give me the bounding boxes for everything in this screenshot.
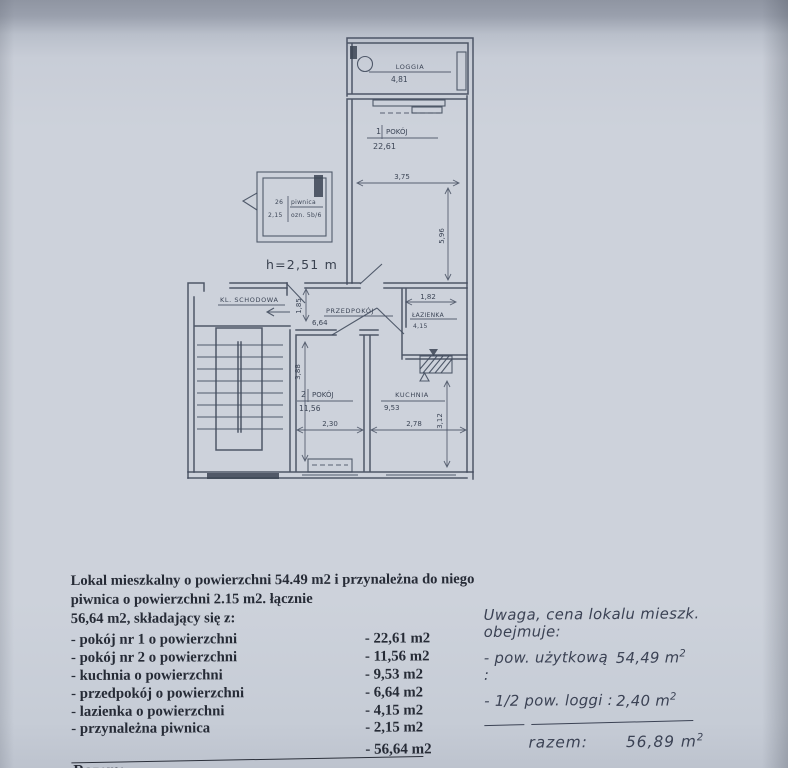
loggia-and-room1-walls (347, 38, 473, 479)
intro-line-1: Lokal mieszkalny o powierzchni 54.49 m2 … (71, 571, 475, 608)
underline-segment (531, 720, 693, 725)
label-bath: ŁAZIENKA (411, 312, 445, 319)
note-total-label: razem: (528, 733, 588, 752)
area-hall: 6,64 (312, 319, 328, 327)
list-item: - pokój nr 1 o powierzchni - 22,61 m2 (71, 630, 511, 650)
ventilation-shaft (420, 349, 452, 381)
note-piwnica: ozn. 5b/6 (291, 212, 322, 219)
item-label: - lazienka o powierzchni (71, 702, 365, 721)
list-item: - przynależna piwnica - 2,15 m2 (71, 719, 511, 739)
list-item: - przedpokój o powierzchni - 6,64 m2 (71, 684, 511, 704)
note-total-value: 56,89 m2 (626, 732, 704, 751)
dim-room1-width: 3,75 (394, 173, 410, 181)
stairwell-window (207, 473, 279, 479)
label-kitchen: KUCHNIA (395, 391, 429, 399)
entrance-arrow (267, 308, 290, 316)
item-value: - 2,15 m2 (365, 720, 423, 738)
note-value-sup: 2 (679, 648, 686, 659)
list-item: - pokój nr 2 o powierzchni - 11,56 m2 (71, 648, 511, 668)
area-room2: 11,56 (299, 404, 321, 413)
item-value: - 6,64 m2 (365, 684, 423, 702)
label-loggia: LOGGIA (396, 63, 425, 71)
note-row-label: - 1/2 pow. loggi : (484, 692, 616, 711)
dim-kitchen-width: 2,78 (406, 420, 422, 428)
door-swings (267, 264, 404, 335)
ceiling-height-note: h=2,51 m (266, 257, 338, 272)
label-hall: PRZEDPOKÓJ (326, 306, 374, 315)
label-piwnica: piwnica (291, 199, 316, 206)
dim-bath-width: 1,82 (420, 293, 436, 301)
label-room2: POKÓJ (312, 390, 334, 399)
dim-room2-height: 3,88 (294, 364, 302, 380)
area-piwnica: 2,15 (268, 212, 283, 219)
basement-cell (243, 172, 332, 242)
area-kitchen: 9,53 (384, 404, 400, 412)
item-value: - 9,53 m2 (365, 666, 423, 684)
note-total-row: razem: 56,89 m2 (484, 732, 740, 752)
total-row: - 56,64 m2 Razem: (71, 741, 511, 768)
dim-hall-width: 1,85 (295, 298, 303, 314)
item-label: - pokój nr 1 o powierzchni (71, 631, 365, 650)
label-room1-no: 1 (376, 127, 381, 136)
label-underlines (218, 72, 457, 402)
item-value: - 4,15 m2 (365, 702, 423, 720)
intro-line-2: 56,64 m2, składający się z: (71, 610, 236, 627)
typed-description-block: Lokal mieszkalny o powierzchni 54.49 m2 … (71, 570, 512, 768)
note-value-text: 54,49 m (616, 649, 680, 666)
intro-paragraph: Lokal mieszkalny o powierzchni 54.49 m2 … (71, 570, 511, 629)
item-value: - 11,56 m2 (365, 648, 430, 666)
floor-plan-drawing: LOGGIA 4,81 1 POKÓJ 22,61 26 piwnica 2,1… (0, 0, 788, 545)
note-value-text: 2,40 m (616, 693, 670, 710)
loggia-fixture (350, 46, 357, 59)
note-row-value: 2,40 m2 (616, 692, 677, 710)
area-bath: 4,15 (413, 323, 428, 330)
label-piwnica-no: 26 (275, 199, 283, 206)
note-row-value: 54,49 m2 (616, 648, 686, 682)
handwritten-underline (484, 719, 740, 726)
handwritten-note: Uwaga, cena lokalu mieszk. obejmuje: - p… (483, 605, 740, 752)
dim-kitchen-height: 3,12 (436, 413, 444, 429)
item-label: - przedpokój o powierzchni (71, 684, 365, 703)
note-row-loggia: - 1/2 pow. loggi : 2,40 m2 (484, 691, 740, 711)
label-room2-no: 2 (301, 390, 306, 399)
note-row-usable-area: - pow. użytkową : 54,49 m2 (484, 648, 740, 684)
dim-room1-height: 5,96 (438, 228, 446, 244)
radiator-bay (308, 459, 352, 472)
area-list: - pokój nr 1 o powierzchni - 22,61 m2 - … (71, 630, 511, 739)
note-row-label: - pow. użytkową : (484, 649, 616, 684)
total-label: Razem: (73, 762, 125, 768)
label-room1: POKÓJ (386, 127, 408, 136)
area-loggia: 4,81 (391, 75, 408, 84)
note-heading: Uwaga, cena lokalu mieszk. obejmuje: (483, 605, 739, 641)
underline-segment (484, 724, 524, 726)
area-room1: 22,61 (373, 142, 396, 151)
label-staircase: KL. SCHODOWA (220, 296, 279, 304)
list-item: - kuchnia o powierzchni - 9,53 m2 (71, 666, 511, 686)
note-value-sup: 2 (670, 692, 677, 703)
dim-room2-width: 2,30 (322, 420, 338, 428)
list-item: - lazienka o powierzchni - 4,15 m2 (71, 702, 511, 722)
item-label: - kuchnia o powierzchni (71, 666, 365, 685)
note-total-text: 56,89 m (626, 732, 697, 750)
item-label: - przynależna piwnica (71, 720, 365, 739)
note-total-sup: 2 (697, 732, 704, 743)
scanned-document-page: LOGGIA 4,81 1 POKÓJ 22,61 26 piwnica 2,1… (0, 0, 788, 768)
item-value: - 22,61 m2 (365, 630, 430, 648)
item-label: - pokój nr 2 o powierzchni (71, 648, 365, 667)
